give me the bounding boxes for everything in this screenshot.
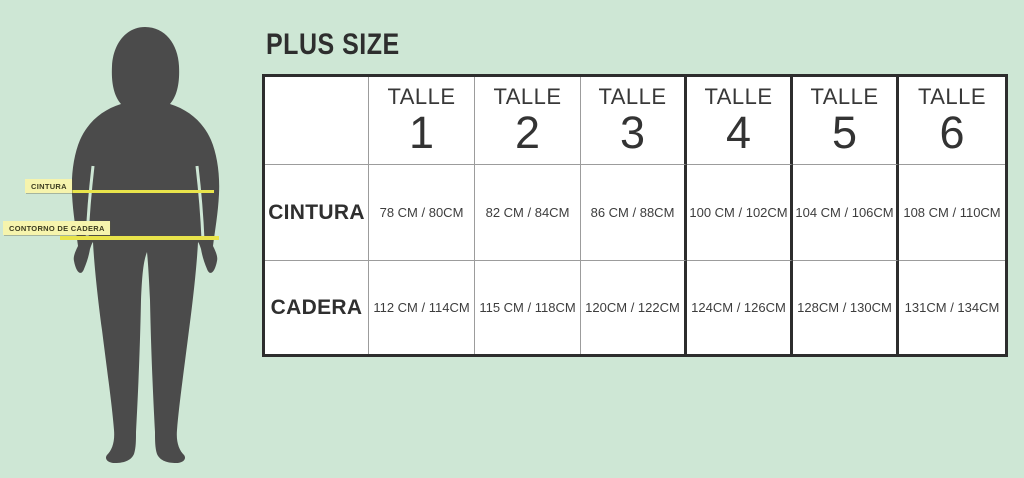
cadera-talle-3: 120CM / 122CM xyxy=(581,261,687,354)
size-word: TALLE xyxy=(387,85,455,109)
table-header-talle-2: TALLE 2 xyxy=(475,77,581,165)
size-word: TALLE xyxy=(493,85,561,109)
size-number: 6 xyxy=(939,109,964,156)
table-header-talle-1: TALLE 1 xyxy=(369,77,475,165)
waist-label: CINTURA xyxy=(25,179,72,193)
table-header-talle-6: TALLE 6 xyxy=(899,77,1005,165)
hip-measure-line xyxy=(60,236,219,240)
cintura-talle-4: 100 CM / 102CM xyxy=(687,165,793,261)
cadera-talle-4: 124CM / 126CM xyxy=(687,261,793,354)
size-number: 5 xyxy=(832,109,857,156)
cadera-talle-2: 115 CM / 118CM xyxy=(475,261,581,354)
row-label-cintura: CINTURA xyxy=(265,165,369,261)
cintura-talle-2: 82 CM / 84CM xyxy=(475,165,581,261)
size-number: 2 xyxy=(515,109,540,156)
cadera-talle-5: 128CM / 130CM xyxy=(793,261,899,354)
table-header-talle-3: TALLE 3 xyxy=(581,77,687,165)
size-number: 4 xyxy=(726,109,751,156)
cintura-talle-6: 108 CM / 110CM xyxy=(899,165,1005,261)
size-word: TALLE xyxy=(918,85,986,109)
size-table: TALLE 1 TALLE 2 TALLE 3 TALLE 4 TALLE 5 … xyxy=(262,74,1008,357)
body-figure-panel: CINTURA CONTORNO DE CADERA xyxy=(0,0,256,478)
size-word: TALLE xyxy=(598,85,666,109)
cintura-talle-1: 78 CM / 80CM xyxy=(369,165,475,261)
size-number: 3 xyxy=(620,109,645,156)
cintura-talle-5: 104 CM / 106CM xyxy=(793,165,899,261)
cadera-talle-1: 112 CM / 114CM xyxy=(369,261,475,354)
size-word: TALLE xyxy=(810,85,878,109)
row-label-cadera: CADERA xyxy=(265,261,369,354)
table-corner-cell xyxy=(265,77,369,165)
hip-label: CONTORNO DE CADERA xyxy=(3,221,110,235)
cadera-talle-6: 131CM / 134CM xyxy=(899,261,1005,354)
size-number: 1 xyxy=(409,109,434,156)
waist-measure-line xyxy=(63,190,214,193)
table-header-talle-5: TALLE 5 xyxy=(793,77,899,165)
table-header-talle-4: TALLE 4 xyxy=(687,77,793,165)
page-title: PLUS SIZE xyxy=(266,28,400,62)
cintura-talle-3: 86 CM / 88CM xyxy=(581,165,687,261)
size-word: TALLE xyxy=(704,85,772,109)
